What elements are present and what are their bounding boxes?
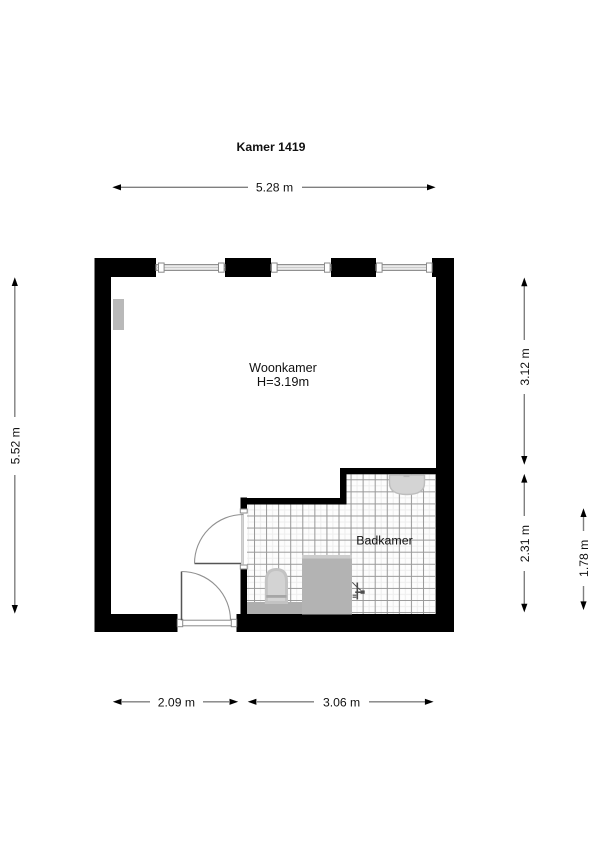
svg-text:5.28 m: 5.28 m [256, 181, 293, 195]
svg-text:Badkamer: Badkamer [356, 534, 412, 548]
svg-text:3.12 m: 3.12 m [518, 348, 532, 385]
svg-text:3.06 m: 3.06 m [323, 695, 360, 709]
svg-text:H=3.19m: H=3.19m [257, 374, 309, 389]
svg-text:2.31 m: 2.31 m [518, 525, 532, 562]
svg-text:Woonkamer: Woonkamer [249, 361, 317, 375]
svg-text:Kamer 1419: Kamer 1419 [236, 140, 305, 154]
svg-text:2.09 m: 2.09 m [158, 695, 195, 709]
svg-text:5.52 m: 5.52 m [8, 427, 22, 464]
svg-text:1.78 m: 1.78 m [577, 540, 591, 577]
